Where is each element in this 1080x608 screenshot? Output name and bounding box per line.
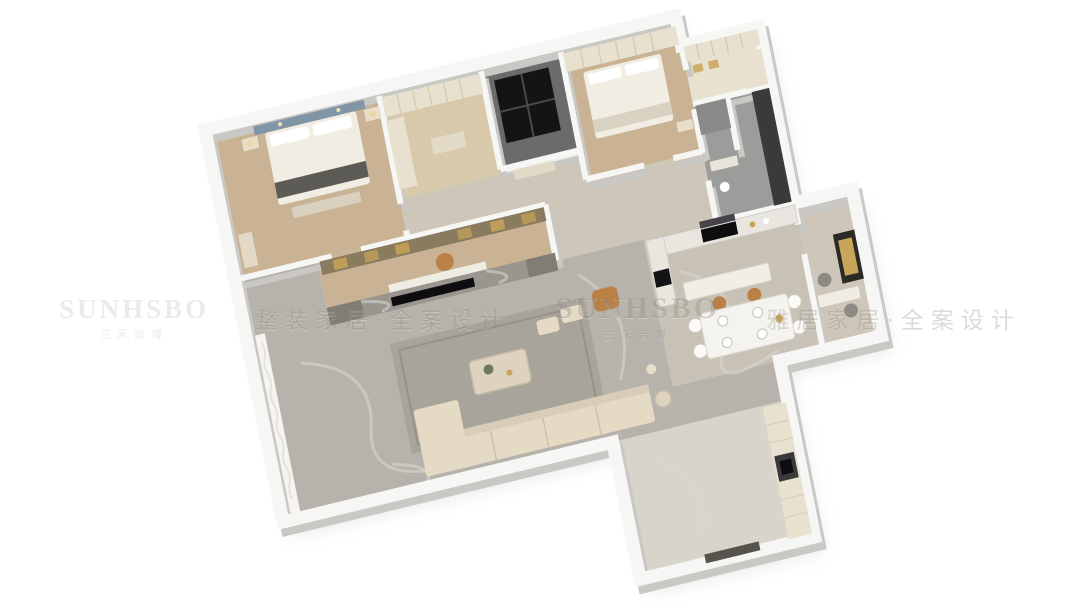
floorplan	[205, 0, 921, 608]
floorplan-render-stage: SUNHSBO 三禾尚博 整装家居·全案设计 SUNHSBO 三禾尚博 雅居家居…	[0, 0, 1080, 608]
floorplan-3d-svg	[0, 0, 1080, 608]
